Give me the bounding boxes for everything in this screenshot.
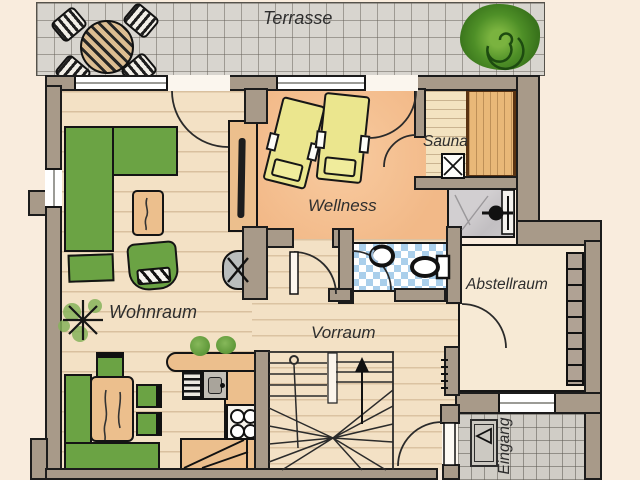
wall: [584, 240, 602, 480]
tv-icon: [237, 138, 245, 218]
sink-icon: [202, 370, 228, 400]
lounger-cushion: [323, 156, 357, 177]
coffee-table: [132, 190, 164, 236]
lounger-cushion: [270, 158, 303, 183]
wall: [242, 226, 268, 300]
sofa: [64, 126, 114, 252]
wall: [414, 88, 426, 138]
corner-bench: [64, 442, 160, 470]
wall: [440, 404, 460, 424]
wall: [444, 346, 460, 396]
hallway-label: Vorraum: [311, 323, 376, 343]
terrace-door-opening: [366, 75, 418, 91]
armchair: [126, 240, 180, 292]
sauna-label: Sauna: [423, 133, 468, 151]
wall: [414, 176, 518, 190]
wall: [516, 75, 540, 227]
bush-icon: [460, 4, 540, 70]
storage-room-label: Abstellraum: [466, 276, 548, 294]
base-cabinet: [180, 438, 248, 470]
wall: [45, 468, 438, 480]
window: [74, 77, 168, 89]
lounger-handle: [359, 135, 371, 154]
dishwasher-icon: [182, 370, 202, 400]
window: [45, 168, 62, 208]
wall: [254, 350, 270, 470]
lounger-handle: [315, 130, 327, 149]
ottoman: [68, 253, 115, 283]
floor-plan: Terrasse Sauna: [0, 0, 640, 480]
kitchen-counter: [166, 352, 258, 372]
wellness-label: Wellness: [308, 196, 377, 216]
dining-chair: [136, 412, 162, 436]
entry-door-opening: [442, 424, 458, 464]
doormat-icon: [470, 419, 498, 467]
terrace-label: Terrasse: [263, 8, 332, 29]
wall: [394, 288, 446, 302]
counter-plant-icon: [216, 336, 236, 354]
wall: [244, 88, 268, 124]
wall: [328, 288, 352, 302]
window: [276, 77, 366, 89]
counter-plant-icon: [190, 336, 210, 356]
wall: [446, 226, 462, 304]
wellness-lounger: [316, 92, 371, 184]
dining-chair: [96, 352, 124, 378]
entry-label: Eingang: [496, 418, 514, 475]
armchair-cushion: [136, 267, 171, 286]
sauna-bench: [466, 89, 516, 178]
doormat-inner: [474, 424, 494, 462]
dining-chair: [136, 384, 162, 408]
dining-table: [90, 376, 134, 442]
terrace-door-opening: [168, 75, 230, 91]
living-room-label: Wohnraum: [109, 302, 197, 323]
wc-floor: [350, 242, 450, 292]
storage-shelf: [566, 252, 584, 386]
faucet-icon: [220, 383, 225, 388]
window: [498, 394, 556, 412]
wall: [45, 85, 62, 480]
wall: [442, 464, 460, 480]
wall: [266, 228, 294, 248]
